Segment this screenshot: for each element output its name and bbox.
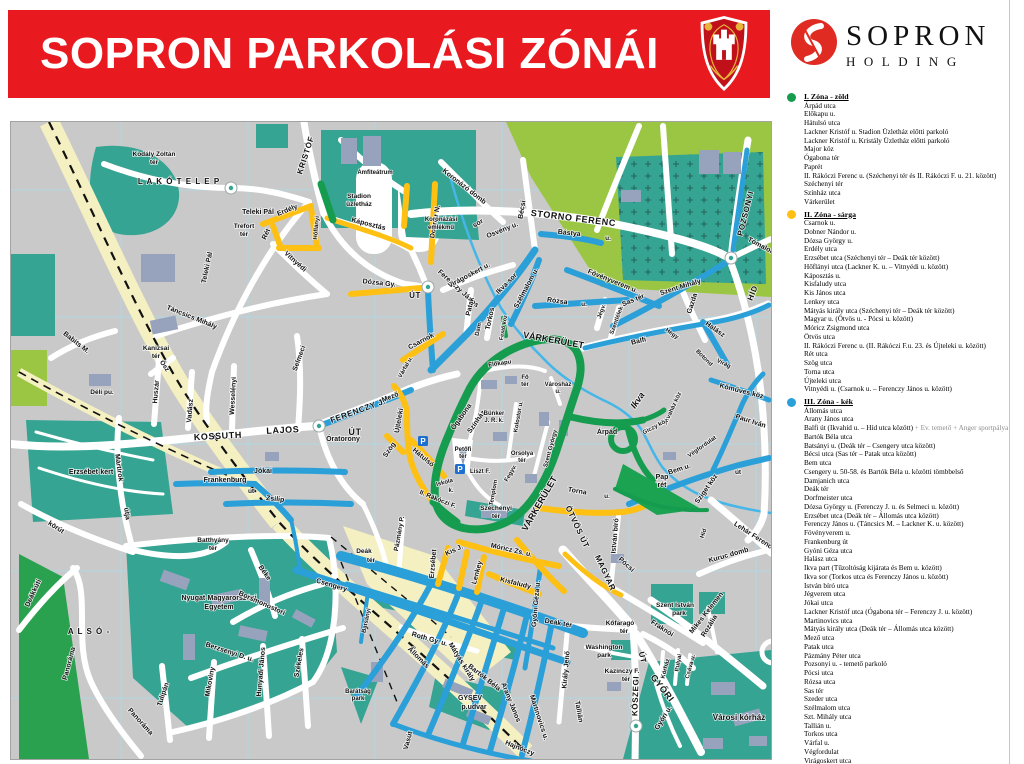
zone-road-jokai — [211, 471, 345, 473]
map-label: Koronázási — [425, 217, 458, 223]
street-item: Dózsa György u. (Ferenczy J. u. és Selme… — [804, 503, 1008, 512]
map-label: emlékmű — [428, 225, 454, 231]
map-label: GYSEV — [458, 695, 482, 702]
map-label: Kodály Zoltán — [133, 151, 176, 158]
zone-street-list: Állomás utcaArany János utcaBalfi út (Ik… — [786, 407, 1008, 764]
street-item: Ikva sor (Torkos utca és Ferenczy János … — [804, 573, 1008, 582]
map-label: Petőfi — [455, 447, 472, 453]
street-item: Deák tér — [804, 485, 1008, 494]
map-label: Bünker — [484, 411, 505, 417]
map-label: Barátság — [345, 689, 371, 695]
map-label: A L S Ó - — [68, 627, 110, 636]
map-label: Liszt F. — [470, 469, 490, 475]
logo-text-sopron: SOPRON — [846, 20, 990, 53]
map-label: Déli pu. — [90, 389, 114, 396]
zone-street-list: Csarnok u.Dobner Nándor u.Dózsa György u… — [786, 219, 1008, 394]
map-label: tér — [521, 382, 529, 388]
map-label: tér — [620, 628, 629, 635]
street-item: Ikva part (Tűzoltóság kijárata és Bem u.… — [804, 564, 1008, 573]
zone-title: III. Zóna - kék — [786, 397, 1008, 407]
street-item: Végfordulat — [804, 748, 1008, 757]
street-item: Várfal u. — [804, 739, 1008, 748]
street-item: Batsányi u. (Deák tér – Csengery utca kö… — [804, 442, 1008, 451]
zone-title: II. Zóna - sárga — [786, 210, 1008, 220]
map-label: Városi kórház — [713, 713, 765, 722]
map-label: tér — [459, 454, 467, 460]
street-item: Erzsébet utca (Deák tér – Állomás utca k… — [804, 512, 1008, 521]
map-label: Kanizsai — [143, 345, 170, 352]
street-item: Szeder utca — [804, 695, 1008, 704]
parking-icon: P — [418, 436, 428, 446]
map-label: út — [735, 469, 742, 476]
map-label: Szent István — [656, 602, 694, 609]
street-item: Újteleki utca — [804, 377, 1008, 386]
map-label: Stadion — [347, 193, 371, 200]
map-label: tér — [152, 353, 161, 360]
street-item: Széchenyi tér — [804, 180, 1008, 189]
street-item: Magyar u. (Ötvös u. - Pócsi u. között) — [804, 315, 1008, 324]
street-item: Major köz — [804, 145, 1008, 154]
street-item: Színház utca — [804, 189, 1008, 198]
map-label: Fő — [521, 375, 529, 381]
map-label: KŐSZEGI — [630, 676, 640, 717]
street-item: Erdély utca — [804, 245, 1008, 254]
street-item: Lackner Kristóf utca (Ógabona tér – Fere… — [804, 608, 1008, 617]
zone-color-bullet — [787, 93, 796, 102]
street-item: Tallián u. — [804, 722, 1008, 731]
map-label: L A K Ó T E L E P — [138, 177, 220, 186]
map-label: u. — [604, 493, 610, 500]
zone-road-zsilip — [226, 503, 351, 505]
map-label: Pap — [656, 474, 669, 481]
map-label: p.udvar — [461, 704, 487, 711]
parking-zones-sign: SOPRON PARKOLÁSI ZÓNÁI SOPRON HOLDING — [0, 0, 1024, 764]
street-item: Móricz Zsigmond utca — [804, 324, 1008, 333]
street-item: Bem utca — [804, 459, 1008, 468]
street-item: Dobner Nándor u. — [804, 228, 1008, 237]
map-label: k. — [448, 488, 453, 494]
street-item: Jókai utca — [804, 599, 1008, 608]
zone-color-bullet — [787, 210, 796, 219]
map-label: Árpád — [597, 427, 617, 436]
street-item: Kis János utca — [804, 289, 1008, 298]
street-item: Martinovics utca — [804, 617, 1008, 626]
map-label: Washington — [586, 644, 623, 651]
map-label: tér — [209, 545, 218, 552]
city-map: P P Kodály ZoltántérL A K Ó T E L E PTel… — [10, 121, 772, 760]
street-item: Csengery u. 50-58. és Bartók Béla u. köz… — [804, 468, 1008, 477]
street-item: Dózsa György u. — [804, 237, 1008, 246]
zone-section-2: II. Zóna - sárgaCsarnok u.Dobner Nándor … — [786, 210, 1008, 395]
street-item: Lackner Kristóf u. Stadion Üzletház előt… — [804, 128, 1008, 137]
street-item: Bartók Béla utca — [804, 433, 1008, 442]
street-item: Állomás utca — [804, 407, 1008, 416]
street-item: István bíró utca — [804, 582, 1008, 591]
sopron-holding-logo-mark-icon — [790, 18, 838, 66]
street-item: Káposztás u. — [804, 272, 1008, 281]
street-item: II. Rákóczi Ferenc u. (II. Rákóczi F.u. … — [804, 342, 1008, 351]
street-item: Előkapu u. — [804, 110, 1008, 119]
zone-street-list: Árpád utcaElőkapu u.Hátulsó utcaLackner … — [786, 102, 1008, 207]
map-label: Amfiteátrum — [357, 170, 392, 176]
street-item: Bécsi utca (Sas tér – Patak utca között) — [804, 450, 1008, 459]
map-label: tér — [622, 676, 631, 683]
street-item: Erzsébet utca (Széchenyi tér – Deák tér … — [804, 254, 1008, 263]
street-item: Jégverem utca — [804, 590, 1008, 599]
street-item: Gyóni Géza utca — [804, 547, 1008, 556]
map-label: tér — [150, 159, 159, 166]
map-label: u. — [581, 301, 587, 308]
map-label: tér — [518, 458, 526, 464]
street-item: Vitnyédi u. (Csarnok u. – Ferenczy János… — [804, 385, 1008, 394]
street-item: Csarnok u. — [804, 219, 1008, 228]
map-label: Teleki Pál — [242, 209, 274, 216]
map-label: Kőfaragó — [606, 620, 635, 627]
map-label: Deák — [356, 548, 372, 555]
svg-text:P: P — [420, 437, 426, 446]
street-item: Mező utca — [804, 634, 1008, 643]
street-item: Torkos utca — [804, 730, 1008, 739]
street-item: Pázmány Péter utca — [804, 652, 1008, 661]
street-item: Sas tér — [804, 687, 1008, 696]
street-item: Damjanich utca — [804, 477, 1008, 486]
street-item: Rózsa utca — [804, 678, 1008, 687]
street-item: Ötvös utca — [804, 333, 1008, 342]
street-item: Arany János utca — [804, 415, 1008, 424]
street-item: Lenkey utca — [804, 298, 1008, 307]
street-item: Pozsonyi u. - temető parkoló — [804, 660, 1008, 669]
street-item: Balfi út (Ikvahíd u. – Híd utca között) … — [804, 424, 1008, 433]
street-item: Szélmalom utca — [804, 704, 1008, 713]
street-item-note: + Ev. temető + Anger sportpálya — [913, 424, 1008, 432]
deli-pu-building — [89, 374, 111, 386]
street-item: Paprét — [804, 163, 1008, 172]
map-label: Erzsébet-kert — [69, 469, 114, 476]
page-title: SOPRON PARKOLÁSI ZÓNÁI — [40, 10, 659, 98]
title-banner: SOPRON PARKOLÁSI ZÓNÁI — [8, 10, 770, 98]
map-label: ÚT — [409, 291, 421, 300]
street-item: Rét utca — [804, 350, 1008, 359]
map-label: u. — [605, 235, 611, 242]
parking-icon: P — [455, 464, 465, 474]
map-label: ÚT — [348, 426, 361, 437]
map-label: Batthyány — [197, 537, 229, 544]
map-label: park — [597, 652, 611, 659]
street-item: Lackner Kristóf u. Kristály Üzletház elő… — [804, 137, 1008, 146]
map-label: Városház — [545, 382, 572, 388]
zone-title: I. Zóna - zöld — [786, 92, 1008, 102]
street-item: Hőflányi utca (Lackner K. u. – Vitnyédi … — [804, 263, 1008, 272]
map-label: Orsolya — [511, 451, 534, 457]
map-label: tér — [492, 513, 501, 520]
city-map-svg: P P Kodály ZoltántérL A K Ó T E L E PTel… — [11, 122, 771, 759]
street-item: Hátulsó utca — [804, 119, 1008, 128]
map-label: Egyetem — [204, 604, 233, 611]
map-label: út — [248, 488, 255, 495]
map-label: park — [352, 696, 365, 702]
sopron-coat-of-arms-icon — [698, 15, 750, 93]
zone-section-1: I. Zóna - zöldÁrpád utcaElőkapu u.Hátuls… — [786, 92, 1008, 207]
legend-panel: SOPRON HOLDING I. Zóna - zöldÁrpád utcaE… — [786, 8, 1008, 764]
street-item: Frankenburg út — [804, 538, 1008, 547]
map-label: Kazinczy F. — [605, 668, 640, 675]
street-item: Halász utca — [804, 555, 1008, 564]
street-item: Kisfaludy utca — [804, 280, 1008, 289]
map-label: Trefort — [234, 223, 255, 230]
street-item: Szög utca — [804, 359, 1008, 368]
map-label: LAJOS — [266, 424, 299, 436]
map-label: rét — [658, 482, 668, 489]
map-label: tér — [240, 231, 249, 238]
street-item: Dorfmeister utca — [804, 494, 1008, 503]
map-label: üzletház — [346, 201, 372, 208]
zone-legend-lists: I. Zóna - zöldÁrpád utcaElőkapu u.Hátuls… — [786, 92, 1008, 764]
map-label: Jókai — [254, 468, 272, 475]
map-label: park — [672, 610, 686, 617]
street-item: Patak utca — [804, 643, 1008, 652]
street-item: Mátyás király utca (Széchenyi tér – Deák… — [804, 307, 1008, 316]
street-item: Ferenczy János u. (Táncsics M. – Lackner… — [804, 520, 1008, 529]
street-item: Ógabona tér — [804, 154, 1008, 163]
street-item: II. Rákóczi Ferenc u. (Széchenyi tér és … — [804, 172, 1008, 181]
street-item: Mátyás király utca (Deák tér – Állomás u… — [804, 625, 1008, 634]
map-label: u. — [555, 389, 561, 395]
street-item: Fövényverem u. — [804, 529, 1008, 538]
street-item: Szt. Mihály utca — [804, 713, 1008, 722]
map-label: Frankenburg — [204, 477, 247, 484]
street-item: Pócsi utca — [804, 669, 1008, 678]
map-label: J. R. k. — [484, 418, 504, 424]
sopron-holding-logo: SOPRON HOLDING — [786, 8, 1008, 92]
street-item: Torna utca — [804, 368, 1008, 377]
svg-text:P: P — [457, 465, 463, 474]
panel-divider — [1009, 0, 1010, 764]
zone-section-3: III. Zóna - kékÁllomás utcaArany János u… — [786, 397, 1008, 764]
map-label: tér — [367, 557, 376, 564]
street-item: Várkerület — [804, 198, 1008, 207]
street-item: Árpád utca — [804, 102, 1008, 111]
street-item: Virágoskert utca — [804, 757, 1008, 764]
logo-text-holding: HOLDING — [846, 54, 990, 70]
zone-color-bullet — [787, 398, 796, 407]
map-label: Széchenyi — [480, 505, 512, 512]
